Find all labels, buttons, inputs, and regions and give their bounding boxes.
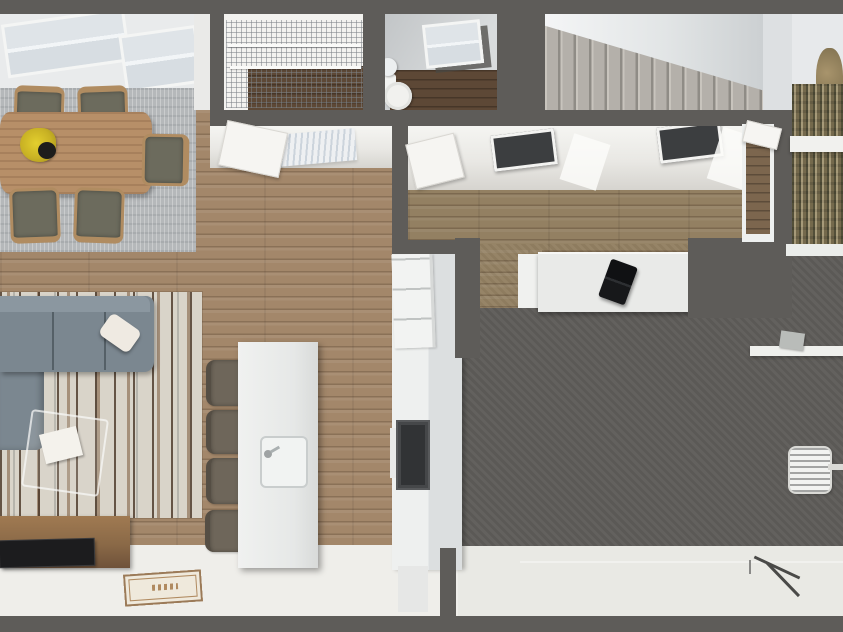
deck-rail [790, 136, 843, 152]
sofa-seam [52, 312, 54, 370]
dining-chair-end [142, 134, 190, 187]
wall-gap-white [194, 12, 210, 110]
closet-wire-shelving [226, 20, 363, 108]
stair-sloped-ceiling [545, 12, 763, 110]
snow-shovel-head [790, 448, 830, 492]
top-exterior-wall [0, 0, 843, 14]
closet-shelf-bar [228, 44, 361, 47]
toilet-bowl [384, 82, 412, 110]
snow-shovel-handle [828, 464, 843, 470]
tree-trunk [792, 84, 843, 248]
desk-side-panel [518, 254, 540, 308]
dining-chair [9, 187, 61, 244]
closet-shelf-bar [230, 66, 361, 69]
closet-bathroom-wall [363, 0, 385, 126]
sofa-back-cushions [0, 296, 150, 312]
kitchen-counter-lower [398, 566, 428, 612]
garden-shears-pin [749, 560, 751, 574]
hall-top-wall [210, 110, 790, 126]
kitchen-return-wall [392, 240, 462, 254]
kitchen-hall-wall [392, 118, 408, 254]
bathroom-stair-wall [497, 0, 545, 126]
floorplan-render [0, 0, 843, 632]
staircase [545, 12, 763, 110]
stair-landing-white [763, 12, 792, 110]
dining-chair [73, 187, 125, 244]
garage-left-wall-lower [440, 548, 456, 618]
entry-door-floor [746, 138, 770, 234]
tv [0, 539, 94, 567]
bottom-exterior-wall [0, 616, 843, 632]
island-sink [260, 436, 308, 488]
shelf-item [779, 330, 805, 350]
refrigerator [391, 253, 435, 348]
closet-left-wall [210, 0, 224, 126]
garage-apron-line [520, 561, 843, 563]
garage-threshold [786, 244, 843, 256]
oven-control-panel [390, 428, 396, 478]
flower-vase [38, 142, 56, 159]
window-pane-right [118, 25, 203, 93]
oven [396, 420, 430, 490]
garage-left-wall-upper [455, 238, 480, 358]
bathroom-skylight [422, 19, 484, 69]
